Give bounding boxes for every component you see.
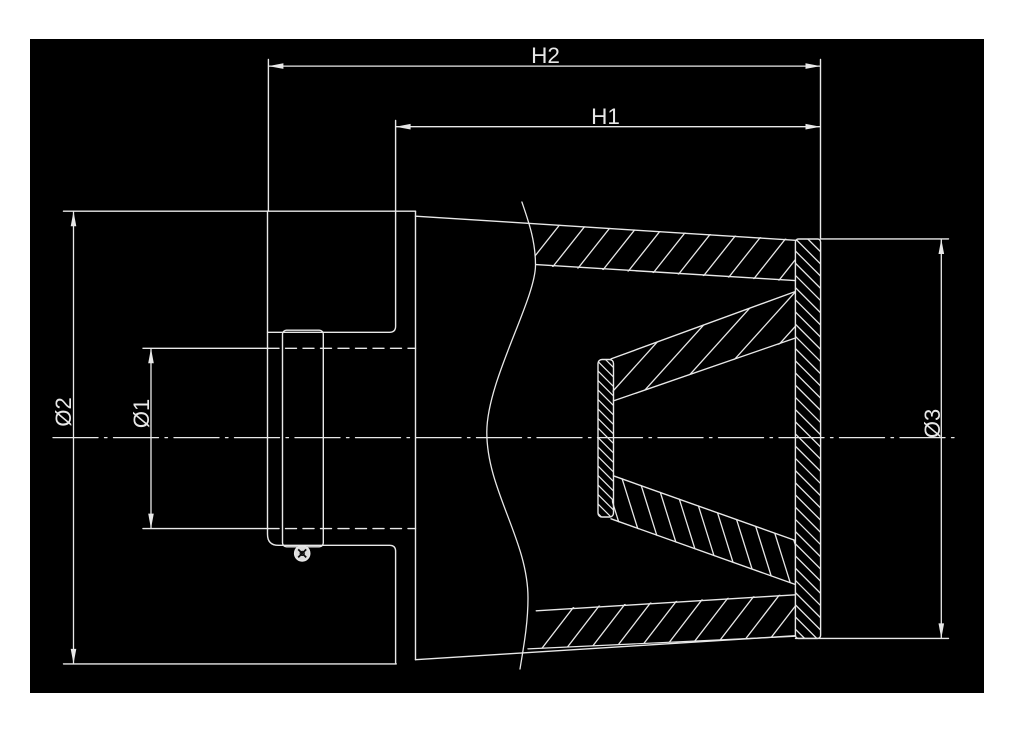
svg-text:H1: H1 bbox=[591, 104, 620, 129]
svg-text:Ø3: Ø3 bbox=[920, 409, 945, 438]
svg-text:Ø2: Ø2 bbox=[51, 397, 76, 426]
svg-text:Ø1: Ø1 bbox=[129, 399, 154, 428]
svg-text:H2: H2 bbox=[531, 43, 560, 68]
